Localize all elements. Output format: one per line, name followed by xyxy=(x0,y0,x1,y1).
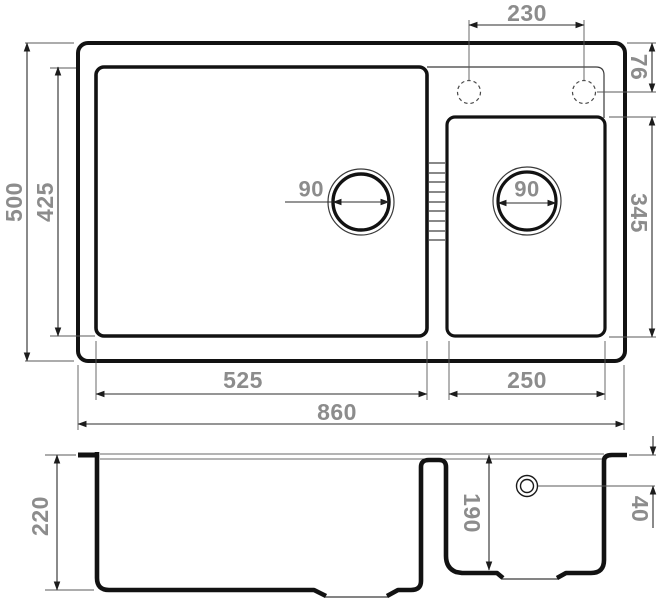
small-bowl xyxy=(447,117,605,336)
section-right-profile xyxy=(557,455,627,578)
section-view: 220 190 40 xyxy=(27,436,656,597)
faucet-spacing-label: 230 xyxy=(507,0,547,26)
dim-small-bowl-height: 190 xyxy=(459,455,489,570)
overflow-hole-inner xyxy=(521,480,534,493)
small-bowl-depth-label: 345 xyxy=(626,193,652,233)
dim-faucet-spacing: 230 xyxy=(469,0,584,81)
main-bowl-height-label: 220 xyxy=(27,496,53,536)
drain-grooves-hatch xyxy=(429,163,445,240)
overflow-hole-outer xyxy=(517,476,538,497)
dim-main-bowl-width: 525 xyxy=(96,341,427,400)
top-view: 230 76 500 425 345 xyxy=(1,0,656,430)
overflow-offset-label: 40 xyxy=(627,496,653,523)
sink-technical-drawing: 230 76 500 425 345 xyxy=(0,0,657,600)
small-bowl-height-label: 190 xyxy=(459,493,485,533)
dim-main-bowl-height: 220 xyxy=(27,455,94,590)
deck-edge-line xyxy=(427,67,604,118)
dim-small-bowl-width: 250 xyxy=(449,341,605,400)
main-bowl-width-label: 525 xyxy=(223,367,263,393)
main-drain-diameter-label: 90 xyxy=(299,177,324,202)
dim-main-bowl-depth: 425 xyxy=(32,67,95,336)
overall-depth-label: 500 xyxy=(1,182,27,222)
faucet-hole-right xyxy=(573,81,596,104)
overall-width-label: 860 xyxy=(317,399,357,425)
section-main-bowl-profile xyxy=(97,452,326,596)
dim-overflow-offset: 40 xyxy=(538,436,656,528)
small-bowl-width-label: 250 xyxy=(507,367,547,393)
main-bowl-depth-label: 425 xyxy=(32,182,58,222)
deck-offset-label: 76 xyxy=(626,54,652,81)
dim-small-bowl-depth: 345 xyxy=(609,117,656,337)
faucet-hole-left xyxy=(458,81,481,104)
small-drain-diameter-label: 90 xyxy=(514,177,539,202)
sink-spec-drawing: 230 76 500 425 345 xyxy=(0,0,657,600)
